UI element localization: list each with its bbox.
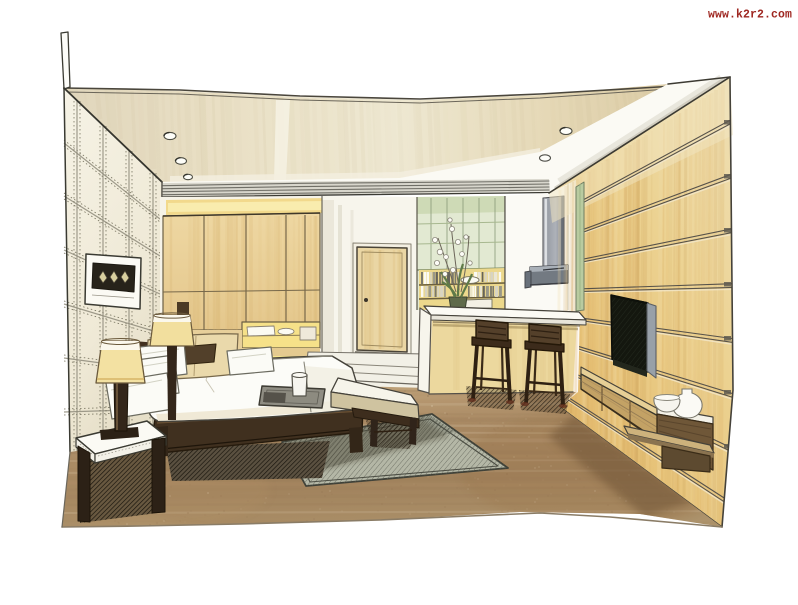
svg-text:www.k2r2.com: www.k2r2.com [708,9,792,22]
